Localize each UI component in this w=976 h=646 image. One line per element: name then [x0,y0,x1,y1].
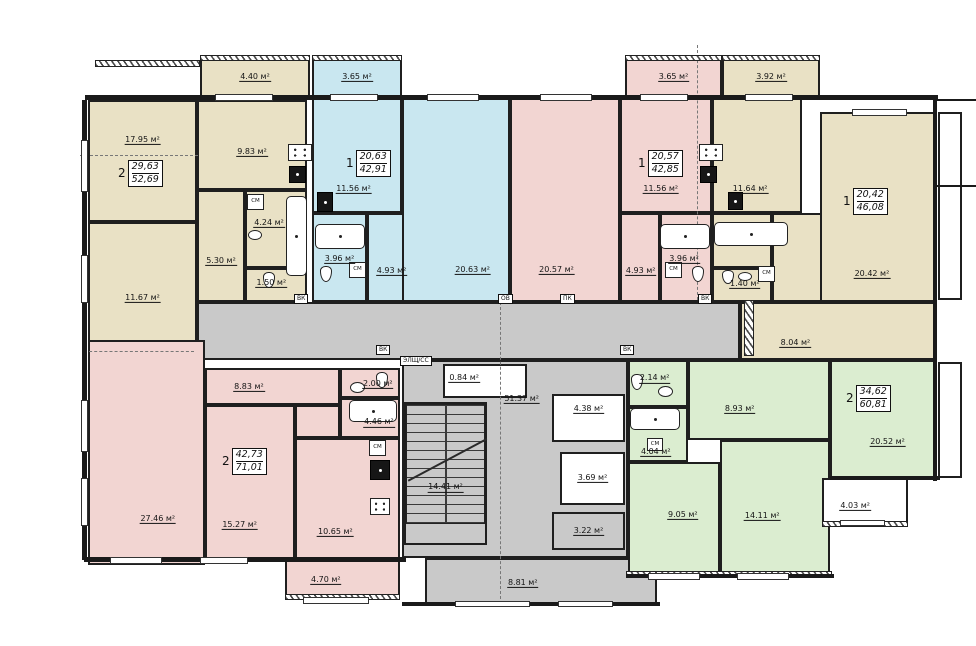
hallway-ext [295,405,340,438]
room-9-05: 9.05 м² [628,462,720,576]
room-9-05-label: 9.05 м² [667,510,699,520]
balcony-4-40: 4.40 м² [200,57,310,97]
bathroom-4-46-label: 4.46 м² [363,417,395,427]
wc-1-50-label: 1.50 м² [256,278,288,288]
kitchen-11-56-left-label: 11.56 м² [335,184,372,194]
apartment-rooms-count: 2 [118,166,126,180]
apartment-total-area: 42,91 [360,164,387,176]
hallway-8-93: 8.93 м² [688,360,830,440]
corridor-center-label: 51.37 м² [503,394,540,404]
balcony-4-70-label: 4.70 м² [310,575,342,585]
apartment-tag: 120,6342,91 [346,150,391,177]
balcony-4-03-label: 4.03 м² [839,500,871,510]
balcony-3-65-left-label: 3.65 м² [341,72,373,82]
room-11-67: 11.67 м² [88,222,197,342]
washer-icon: СМ [665,262,682,278]
tub-icon [315,224,365,249]
hallway-5-30-label: 5.30 м² [205,256,237,266]
apartment-rooms-count: 2 [222,454,230,468]
living-27-46-label: 27.46 м² [139,514,176,524]
apartment-living-area: 20,42 [857,189,884,202]
room-15-27-label: 15.27 м² [221,520,258,530]
bathroom-4-24-label: 4.24 м² [253,218,285,228]
bathroom-3-96-right-label: 3.96 м² [668,254,700,264]
apartment-tag: 120,4246,08 [843,188,888,215]
vestibule-8-81-label: 8.81 м² [507,578,539,588]
apartment-area-box: 20,4246,08 [853,188,888,215]
apartment-tag: 120,5742,85 [638,150,683,177]
living-20-57: 20.57 м² [510,97,620,302]
balcony-3-92-label: 3.92 м² [755,72,787,82]
apartment-tag: 229,6352,69 [118,160,163,187]
window-icon [330,94,378,101]
balcony-4-40-label: 4.40 м² [239,72,271,82]
service-tag-пк: ПК [560,294,575,304]
sink-icon [658,386,673,397]
sink-unit-icon [728,192,743,210]
room-15-27: 15.27 м² [205,405,295,560]
living-20-52: 20.52 м² [830,360,935,478]
hatch-icon [312,55,402,61]
window-icon [737,573,789,580]
apartment-area-box: 20,6342,91 [356,150,391,177]
apartment-total-area: 71,01 [236,462,263,474]
wall [935,99,976,101]
tub-icon [286,196,307,276]
service-tag-элщ-сс: ЭЛЩ/СС [400,356,432,366]
service-tag-ов: ОВ [498,294,513,304]
elevator-3-69-label: 3.69 м² [577,472,609,482]
wc-2-14-label: 2.14 м² [639,373,671,383]
stove-icon [370,498,390,515]
window-icon [110,557,162,564]
hallway-5-30: 5.30 м² [197,190,245,302]
hatch-icon [625,55,722,61]
kitchen-11-64: 11.64 м² [712,97,802,213]
service-tag-вк: ВК [620,345,634,355]
axis-h-icon [80,155,198,156]
window-icon [840,520,885,526]
window-icon [215,94,273,101]
window-icon [81,400,88,452]
balcony-4-03: 4.03 м² [822,478,908,526]
sink-unit-icon [700,166,717,183]
hallway-8-83-label: 8.83 м² [233,381,265,391]
bathroom-4-04-label: 4.04 м² [640,447,672,457]
wc-2-00-label: 2.00 м² [362,378,394,388]
pilaster-bottom [938,362,962,478]
apartment-rooms-count: 1 [843,194,851,208]
apartment-area-box: 29,6352,69 [128,160,163,187]
living-27-46: 27.46 м² [88,340,205,565]
hallway-4-93-left-label: 4.93 м² [376,266,408,276]
window-icon [303,597,369,604]
apartment-living-area: 29,63 [132,161,159,174]
apartment-area-box: 20,5742,85 [648,150,683,177]
axis-h-icon [84,351,194,352]
window-icon [455,601,530,607]
apartment-living-area: 20,63 [360,151,387,164]
balcony-3-65-right-label: 3.65 м² [658,72,690,82]
window-icon [745,94,793,101]
tub-icon [660,224,710,249]
service-tag-вк: ВК [294,294,308,304]
room-11-67-label: 11.67 м² [124,293,161,303]
living-20-42-label: 20.42 м² [854,269,891,279]
shaft-3-22: 3.22 м² [552,512,625,550]
wall [402,602,660,606]
window-icon [81,255,88,303]
hatch-icon [95,60,200,67]
service-tag-вк: ВК [698,294,712,304]
hallway-4-93-right-label: 4.93 м² [625,266,657,276]
apartment-area-box: 42,7371,01 [232,448,267,475]
apartment-total-area: 52,69 [132,174,159,186]
room-14-11-label: 14.11 м² [744,511,781,521]
stove-icon [699,144,723,161]
balcony-3-65-right: 3.65 м² [625,57,722,97]
hatch-icon [744,300,754,356]
living-20-57-label: 20.57 м² [538,265,575,275]
washer-icon: СМ [349,262,366,278]
shaft-3-22-label: 3.22 м² [573,526,605,536]
kitchen-11-64-label: 11.64 м² [732,184,769,194]
apartment-rooms-count: 1 [346,156,354,170]
elevator-4-38: 4.38 м² [552,394,625,442]
hallway-8-83: 8.83 м² [205,368,340,405]
apartment-total-area: 42,85 [652,164,679,176]
window-icon [558,601,613,607]
vestibule-8-81: 8.81 м² [425,558,657,604]
hallway-8-04-label: 8.04 м² [780,338,812,348]
apartment-tag: 234,6260,81 [846,385,891,412]
sink-icon [248,230,262,240]
window-icon [852,109,907,116]
sink-unit-icon [289,166,306,183]
window-icon [81,478,88,526]
wall [830,476,940,480]
living-20-52-label: 20.52 м² [869,437,906,447]
service-tag-вк: ВК [376,345,390,355]
apartment-area-box: 34,6260,81 [856,385,891,412]
living-20-63-label: 20.63 м² [454,265,491,275]
sink-unit-icon [370,460,390,480]
sink-unit-icon [317,192,333,212]
apartment-rooms-count: 1 [638,156,646,170]
hallway-8-04: 8.04 м² [740,302,935,360]
kitchen-9-83-label: 9.83 м² [236,147,268,157]
hatch-icon [722,55,820,61]
window-icon [81,140,88,192]
tub-icon [714,222,788,246]
kitchen-11-56-right-label: 11.56 м² [642,184,679,194]
balcony-3-65-left: 3.65 м² [312,57,402,97]
window-icon [540,94,592,101]
axis-v-icon [500,302,501,604]
wall [933,97,937,481]
washer-icon: СМ [369,440,386,456]
apartment-total-area: 46,08 [857,202,884,214]
closet-0-84-label: 0.84 м² [448,373,480,383]
apartment-tag: 242,7371,01 [222,448,267,475]
tub-icon [630,408,680,430]
wc-2-00: 2.00 м² [340,368,400,398]
window-icon [648,573,700,580]
window-icon [640,94,688,101]
wall [937,185,976,187]
apartment-rooms-count: 2 [846,391,854,405]
apartment-total-area: 60,81 [860,399,887,411]
elevator-3-69: 3.69 м² [560,452,625,505]
window-icon [427,94,479,101]
kitchen-10-65-label: 10.65 м² [317,527,354,537]
hallway-8-93-label: 8.93 м² [724,404,756,414]
room-17-95-label: 17.95 м² [124,135,161,145]
room-14-11: 14.11 м² [720,440,830,576]
pilaster-top [938,112,962,300]
floor-plan: 4.40 м²17.95 м²11.67 м²9.83 м²5.30 м²4.2… [0,0,976,646]
apartment-living-area: 20,57 [652,151,679,164]
elevator-4-38-label: 4.38 м² [573,404,605,414]
apartment-living-area: 34,62 [860,386,887,399]
window-icon [200,557,248,564]
stove-icon [288,144,312,161]
corridor-51-37 [197,302,740,360]
stairs-icon [406,404,485,524]
washer-icon: СМ [247,194,264,210]
hallway-4-93-right: 4.93 м² [620,213,660,302]
living-20-63: 20.63 м² [402,97,510,302]
hatch-icon [200,55,310,61]
balcony-3-92: 3.92 м² [722,57,820,97]
wall [85,95,938,100]
wc-1-40-label: 1.40 м² [729,278,761,288]
bathroom-3-96-left-label: 3.96 м² [324,254,356,264]
stairwell-14-41-label: 14.41 м² [427,482,464,492]
apartment-living-area: 42,73 [236,449,263,462]
